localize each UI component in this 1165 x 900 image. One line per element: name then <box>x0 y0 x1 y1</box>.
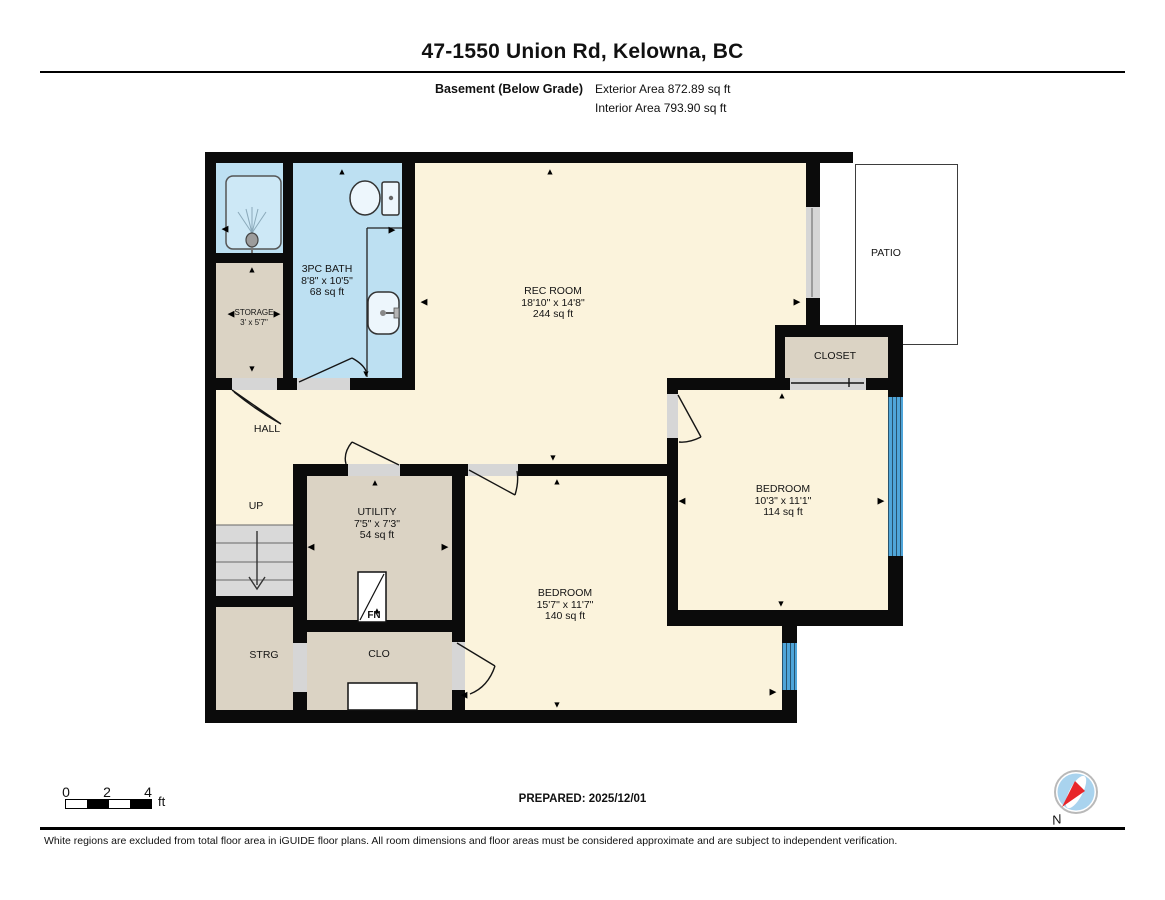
direction-arrow-icon <box>777 600 786 609</box>
direction-arrow-icon <box>274 310 281 319</box>
room-area: 244 sq ft <box>521 309 584 321</box>
room-dims: 3' x 5'7" <box>235 318 274 328</box>
direction-arrow-icon <box>770 688 777 697</box>
direction-arrow-icon <box>461 691 468 700</box>
room-name: HALL <box>254 424 280 436</box>
direction-arrow-icon <box>248 266 257 275</box>
direction-arrow-icon <box>778 392 787 401</box>
room-name: BEDROOM <box>537 588 594 600</box>
direction-arrow-icon <box>389 226 396 235</box>
room-label-rec-room: REC ROOM 18'10" x 14'8" 244 sq ft <box>521 286 584 321</box>
prepared-date: PREPARED: 2025/12/01 <box>0 793 1165 805</box>
direction-arrow-icon <box>248 365 257 374</box>
room-name: CLO <box>368 649 390 661</box>
direction-arrow-icon <box>228 310 235 319</box>
furnace-label: FN <box>367 610 380 622</box>
direction-arrow-icon <box>308 543 315 552</box>
footer-divider <box>40 827 1125 830</box>
direction-arrow-icon <box>549 454 558 463</box>
direction-arrow-icon <box>794 298 801 307</box>
room-label-storage: STORAGE 3' x 5'7" <box>235 308 274 328</box>
direction-arrow-icon <box>421 298 428 307</box>
room-label-clo: CLO <box>368 649 390 661</box>
room-area: 68 sq ft <box>301 287 353 299</box>
floor-plan-page: 47-1550 Union Rd, Kelowna, BC Basement (… <box>0 0 1165 900</box>
direction-arrow-icon <box>679 497 686 506</box>
room-area: 140 sq ft <box>537 611 594 623</box>
room-name: FN <box>367 610 380 622</box>
direction-arrow-icon <box>546 168 555 177</box>
direction-arrow-icon <box>442 543 449 552</box>
room-label-bath: 3PC BATH 8'8" x 10'5" 68 sq ft <box>301 264 353 299</box>
direction-arrow-icon <box>553 478 562 487</box>
room-name: CLOSET <box>814 351 856 363</box>
direction-arrow-icon <box>362 370 371 379</box>
room-name: UP <box>249 501 264 513</box>
room-label-bedroom-right: BEDROOM 10'3" x 11'1" 114 sq ft <box>755 484 812 519</box>
room-name: 3PC BATH <box>301 264 353 276</box>
direction-arrow-icon <box>371 479 380 488</box>
room-label-utility: UTILITY 7'5" x 7'3" 54 sq ft <box>354 507 400 542</box>
disclaimer-text: White regions are excluded from total fl… <box>44 835 1134 847</box>
direction-arrow-icon <box>222 225 229 234</box>
stairs-up-label: UP <box>249 501 264 513</box>
direction-arrow-icon <box>553 701 562 710</box>
room-label-bedroom-bottom: BEDROOM 15'7" x 11'7" 140 sq ft <box>537 588 594 623</box>
direction-arrow-icon <box>338 168 347 177</box>
room-name: STORAGE <box>235 308 274 318</box>
arrow-layer <box>0 0 1165 900</box>
room-area: 54 sq ft <box>354 530 400 542</box>
room-name: UTILITY <box>354 507 400 519</box>
room-label-strg: STRG <box>249 650 278 662</box>
room-label-patio: PATIO <box>871 248 901 260</box>
room-name: PATIO <box>871 248 901 260</box>
room-label-closet: CLOSET <box>814 351 856 363</box>
room-name: STRG <box>249 650 278 662</box>
direction-arrow-icon <box>878 497 885 506</box>
room-label-hall: HALL <box>254 424 280 436</box>
room-area: 114 sq ft <box>755 507 812 519</box>
room-name: REC ROOM <box>521 286 584 298</box>
room-name: BEDROOM <box>755 484 812 496</box>
